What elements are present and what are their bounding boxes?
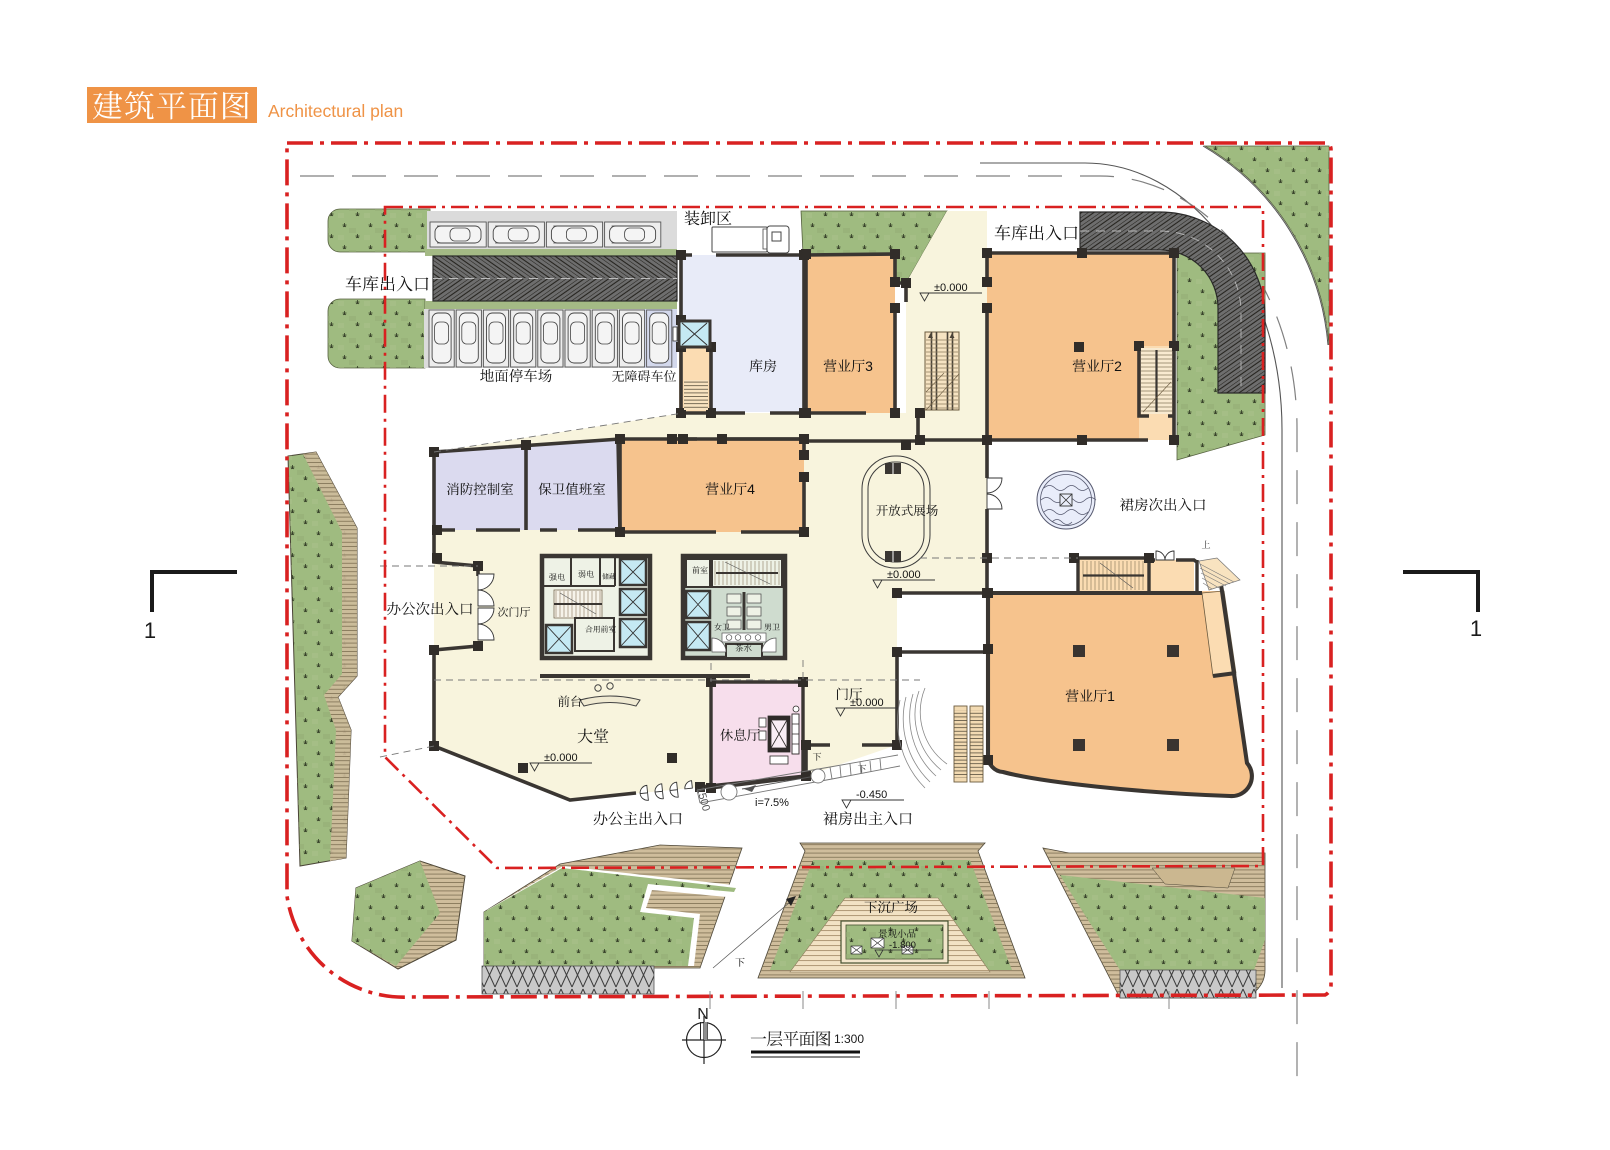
svg-text:-1.800: -1.800 (889, 940, 916, 951)
svg-text:N: N (697, 1006, 709, 1023)
svg-text:1:300: 1:300 (834, 1032, 864, 1046)
svg-text:2: 2 (1114, 358, 1122, 374)
svg-text:±0.000: ±0.000 (887, 569, 921, 581)
svg-text:3: 3 (865, 358, 873, 374)
svg-text:±0.000: ±0.000 (544, 752, 578, 764)
svg-text:4: 4 (747, 481, 755, 497)
svg-text:±0.000: ±0.000 (934, 282, 968, 294)
svg-text:Architectural plan: Architectural plan (268, 101, 403, 121)
svg-text:-0.450: -0.450 (856, 789, 887, 801)
svg-text:1: 1 (1470, 616, 1482, 641)
svg-text:1: 1 (1107, 688, 1115, 704)
svg-text:i=7.5%: i=7.5% (755, 797, 789, 809)
svg-text:1: 1 (144, 618, 156, 643)
svg-text:±0.000: ±0.000 (850, 697, 884, 709)
